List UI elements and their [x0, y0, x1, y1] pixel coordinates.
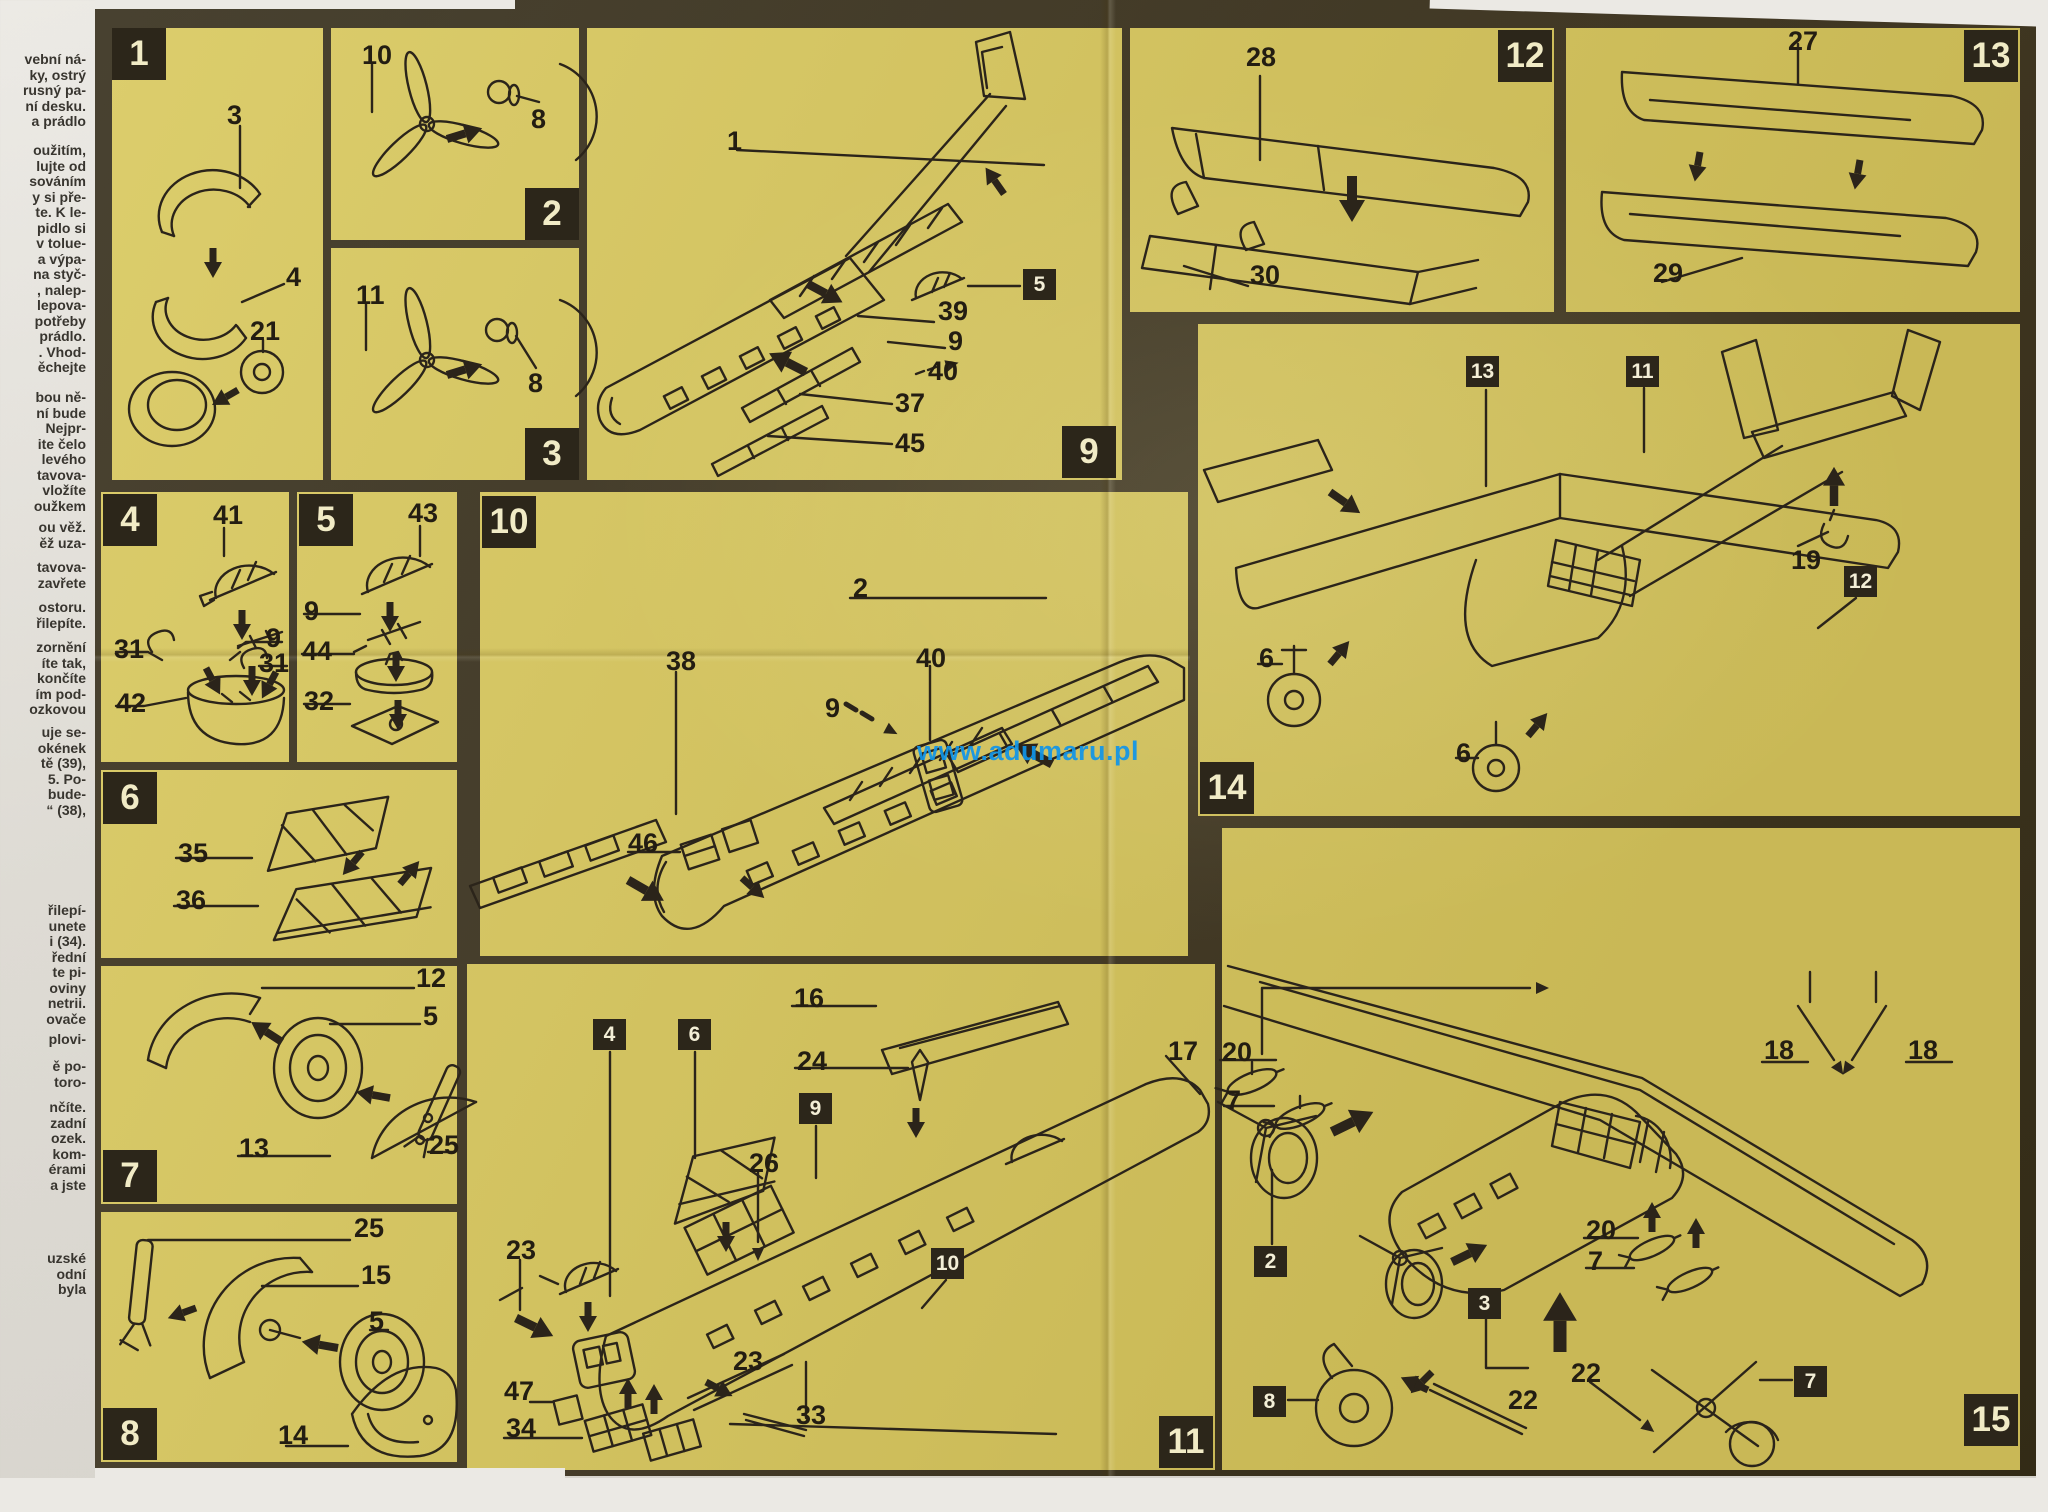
part-label-9: 9: [825, 693, 840, 724]
text-line: na styč-: [0, 267, 86, 283]
text-line: ozek.: [0, 1131, 86, 1147]
step-ref-7: 7: [1794, 1366, 1827, 1397]
text-line: a prádlo: [0, 114, 86, 130]
part-label-18: 18: [1908, 1035, 1938, 1066]
text-line: zornění: [0, 640, 86, 656]
art-step-14: [1204, 330, 1940, 791]
text-line: ní desku.: [0, 99, 86, 115]
part-label-15: 15: [361, 1260, 391, 1291]
text-line: unete: [0, 919, 86, 935]
text-block: řilepí-unetei (34).ředníte pi-ovinynetri…: [0, 903, 86, 1027]
part-label-23: 23: [733, 1346, 763, 1377]
step-number-7: 7: [103, 1150, 157, 1202]
text-line: , nalep-: [0, 283, 86, 299]
step-ref-11: 11: [1626, 356, 1659, 387]
step-ref-10: 10: [931, 1248, 964, 1279]
step-ref-3: 3: [1468, 1288, 1501, 1319]
part-label-9: 9: [304, 596, 319, 627]
text-block: ě po-toro-: [0, 1059, 86, 1090]
part-label-24: 24: [797, 1046, 827, 1077]
part-label-38: 38: [666, 646, 696, 677]
text-line: “ (38),: [0, 803, 86, 819]
text-line: rusný pa-: [0, 83, 86, 99]
text-line: řilepí-: [0, 903, 86, 919]
art-step-9: [598, 32, 1044, 476]
step-number-1: 1: [112, 28, 166, 80]
text-line: pidlo si: [0, 221, 86, 237]
text-line: ostoru.: [0, 600, 86, 616]
text-line: ěchejte: [0, 360, 86, 376]
text-block: ou věž.ěž uza-: [0, 520, 86, 551]
text-line: lepova-: [0, 298, 86, 314]
part-label-25: 25: [429, 1130, 459, 1161]
part-label-26: 26: [749, 1148, 779, 1179]
part-label-10: 10: [362, 40, 392, 71]
text-line: oužitím,: [0, 143, 86, 159]
step-number-9: 9: [1062, 426, 1116, 478]
text-block: vební ná-ky, ostrýrusný pa-ní desku.a pr…: [0, 52, 86, 130]
part-label-22: 22: [1571, 1358, 1601, 1389]
text-line: vební ná-: [0, 52, 86, 68]
art-step-11: [500, 1002, 1209, 1461]
step-number-14: 14: [1200, 762, 1254, 814]
text-line: a jste: [0, 1178, 86, 1194]
art-step-6: [174, 785, 442, 952]
text-line: prádlo.: [0, 329, 86, 345]
text-block: ostoru.řilepíte.: [0, 600, 86, 631]
part-label-17: 17: [1168, 1036, 1198, 1067]
part-label-23: 23: [506, 1235, 536, 1266]
part-label-6: 6: [1259, 643, 1274, 674]
part-label-3: 3: [227, 100, 242, 131]
text-line: ovače: [0, 1012, 86, 1028]
text-block: plovi-: [0, 1032, 86, 1048]
part-label-29: 29: [1653, 258, 1683, 289]
part-label-25: 25: [354, 1213, 384, 1244]
text-line: ěž uza-: [0, 536, 86, 552]
text-line: nčíte.: [0, 1100, 86, 1116]
text-line: netrii.: [0, 996, 86, 1012]
part-label-22: 22: [1508, 1385, 1538, 1416]
part-label-41: 41: [213, 500, 243, 531]
part-label-32: 32: [304, 686, 334, 717]
step-number-8: 8: [103, 1408, 157, 1460]
part-label-13: 13: [239, 1133, 269, 1164]
text-line: a výpa-: [0, 252, 86, 268]
part-label-39: 39: [938, 296, 968, 327]
art-step-2: [368, 50, 597, 182]
text-line: končíte: [0, 671, 86, 687]
part-label-35: 35: [178, 838, 208, 869]
part-label-28: 28: [1246, 42, 1276, 73]
part-label-31: 31: [114, 634, 144, 665]
step-number-13: 13: [1964, 30, 2018, 82]
text-line: toro-: [0, 1075, 86, 1091]
part-label-19: 19: [1791, 545, 1821, 576]
text-line: řilepíte.: [0, 616, 86, 632]
part-label-37: 37: [895, 388, 925, 419]
step-ref-9: 9: [799, 1093, 832, 1124]
step-number-2: 2: [525, 188, 579, 240]
text-line: sováním: [0, 174, 86, 190]
part-label-20: 20: [1586, 1215, 1616, 1246]
text-line: ite čelo: [0, 437, 86, 453]
text-line: bou ně-: [0, 390, 86, 406]
step-ref-5: 5: [1023, 269, 1056, 300]
text-block: nčíte.zadníozek.kom-éramia jste: [0, 1100, 86, 1193]
text-line: te. K le-: [0, 205, 86, 221]
text-line: ozkovou: [0, 702, 86, 718]
text-line: tavova-: [0, 560, 86, 576]
part-label-27: 27: [1788, 26, 1818, 57]
part-label-5: 5: [423, 1001, 438, 1032]
part-label-45: 45: [895, 428, 925, 459]
step-number-11: 11: [1159, 1416, 1213, 1468]
part-label-30: 30: [1250, 260, 1280, 291]
part-label-34: 34: [506, 1413, 536, 1444]
art-step-3: [366, 286, 597, 418]
text-line: íte tak,: [0, 656, 86, 672]
text-line: i (34).: [0, 934, 86, 950]
step-number-4: 4: [103, 494, 157, 546]
text-line: Nejpr-: [0, 421, 86, 437]
step-number-3: 3: [525, 428, 579, 480]
part-label-40: 40: [928, 356, 958, 387]
step-ref-4: 4: [593, 1019, 626, 1050]
part-label-20: 20: [1222, 1037, 1252, 1068]
text-block: bou ně-ní budeNejpr-ite čelolevéhotavova…: [0, 390, 86, 514]
step-ref-2: 2: [1254, 1246, 1287, 1277]
step-number-5: 5: [299, 494, 353, 546]
watermark: www.adumaru.pl: [917, 736, 1139, 767]
text-block: oužitím,lujte odsovánímy si pře-te. K le…: [0, 143, 86, 376]
part-label-11: 11: [356, 280, 385, 311]
text-block: tavova-zavřete: [0, 560, 86, 591]
part-label-18: 18: [1764, 1035, 1794, 1066]
text-line: zadní: [0, 1116, 86, 1132]
part-label-33: 33: [796, 1400, 826, 1431]
text-block: uzskéodníbyla: [0, 1251, 86, 1298]
text-line: uje se-: [0, 725, 86, 741]
part-label-31: 31: [259, 648, 289, 679]
part-label-8: 8: [531, 104, 546, 135]
step-number-10: 10: [482, 496, 536, 548]
text-line: odní: [0, 1267, 86, 1283]
text-line: oužkem: [0, 499, 86, 515]
step-number-6: 6: [103, 772, 157, 824]
text-line: ím pod-: [0, 687, 86, 703]
text-line: . Vhod-: [0, 345, 86, 361]
text-line: zavřete: [0, 576, 86, 592]
art-step-12: [1142, 76, 1529, 304]
text-line: ky, ostrý: [0, 68, 86, 84]
part-label-1: 1: [727, 126, 742, 157]
art-step-15: [1215, 966, 1952, 1466]
text-line: v tolue-: [0, 236, 86, 252]
text-line: tavova-: [0, 468, 86, 484]
text-line: te pi-: [0, 965, 86, 981]
text-line: 5. Po-: [0, 772, 86, 788]
text-line: plovi-: [0, 1032, 86, 1048]
text-line: oviny: [0, 981, 86, 997]
part-label-44: 44: [302, 636, 332, 667]
text-line: byla: [0, 1282, 86, 1298]
step-ref-13: 13: [1466, 356, 1499, 387]
art-step-1: [129, 126, 284, 446]
part-label-8: 8: [528, 368, 543, 399]
newsprint-text-column: vební ná-ky, ostrýrusný pa-ní desku.a pr…: [0, 0, 86, 1512]
text-block: zorněnííte tak,končíteím pod-ozkovou: [0, 640, 86, 718]
part-label-12: 12: [416, 963, 446, 994]
text-line: érami: [0, 1162, 86, 1178]
text-line: y si pře-: [0, 190, 86, 206]
text-line: bude-: [0, 787, 86, 803]
text-line: řední: [0, 950, 86, 966]
art-step-13: [1601, 44, 1982, 282]
part-label-21: 21: [250, 316, 280, 347]
part-label-5: 5: [369, 1306, 384, 1337]
part-label-43: 43: [408, 498, 438, 529]
text-line: ou věž.: [0, 520, 86, 536]
text-line: ě po-: [0, 1059, 86, 1075]
part-label-7: 7: [1588, 1246, 1603, 1277]
step-ref-8: 8: [1253, 1386, 1286, 1417]
text-line: potřeby: [0, 314, 86, 330]
part-label-7: 7: [1226, 1085, 1241, 1116]
part-label-9: 9: [948, 326, 963, 357]
part-label-16: 16: [794, 983, 824, 1014]
text-line: okének: [0, 741, 86, 757]
text-line: tě (39),: [0, 756, 86, 772]
part-label-4: 4: [286, 262, 301, 293]
part-label-47: 47: [504, 1376, 534, 1407]
part-label-6: 6: [1456, 738, 1471, 769]
step-number-15: 15: [1964, 1394, 2018, 1446]
text-block: uje se-okénektě (39),5. Po-bude-“ (38),: [0, 725, 86, 818]
text-line: vložíte: [0, 483, 86, 499]
part-label-36: 36: [176, 885, 206, 916]
text-line: uzské: [0, 1251, 86, 1267]
step-number-12: 12: [1498, 30, 1552, 82]
part-label-40: 40: [916, 643, 946, 674]
text-line: levého: [0, 452, 86, 468]
text-line: kom-: [0, 1147, 86, 1163]
part-label-46: 46: [628, 828, 658, 859]
text-line: lujte od: [0, 159, 86, 175]
text-line: ní bude: [0, 406, 86, 422]
step-ref-6: 6: [678, 1019, 711, 1050]
part-label-2: 2: [853, 573, 868, 604]
part-label-14: 14: [278, 1420, 308, 1451]
step-ref-12: 12: [1844, 566, 1877, 597]
part-label-42: 42: [116, 688, 146, 719]
